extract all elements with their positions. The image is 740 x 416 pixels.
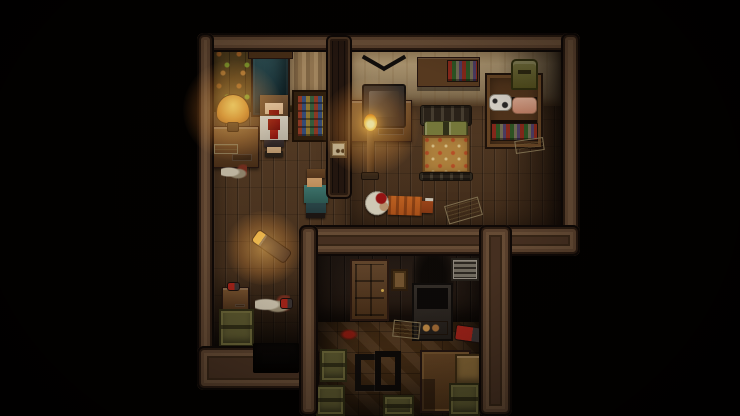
wall-storage-right: [479, 225, 512, 416]
crate-left-top: [320, 349, 347, 382]
bed-foot-rail: [419, 172, 473, 181]
wall-right: [561, 33, 580, 256]
storage-door[interactable]: [350, 259, 389, 321]
wall-left: [197, 33, 214, 390]
bed-blanket: [422, 135, 470, 174]
table-lamp-shade: [216, 94, 250, 124]
divider-wall: [326, 35, 352, 199]
stained-glass-cabinet: [292, 90, 329, 142]
air-vent: [451, 258, 479, 281]
light-switch[interactable]: [330, 141, 347, 158]
small-wall-frame: [391, 269, 408, 291]
bookshelf-bag: [511, 59, 538, 90]
blood-stain: [340, 329, 358, 340]
crate-left-bottom: [316, 385, 345, 416]
red-bottle: [227, 282, 240, 291]
shelf-cow-cloth: [489, 94, 512, 111]
hallway-crate: [219, 309, 254, 347]
dark-passage[interactable]: [253, 343, 299, 373]
storage-floor-papers[interactable]: [392, 320, 421, 340]
fallen-chair: [353, 349, 404, 388]
candle-flame: [364, 114, 377, 131]
hallway-red-item: [280, 298, 293, 309]
wall-storage-left: [299, 225, 318, 416]
crate-right-top: [455, 354, 482, 385]
shelf-pink-cloth: [512, 97, 537, 114]
crate-bottom-middle: [383, 395, 414, 416]
wall-bottom-upper: [299, 225, 580, 256]
crate-right-bottom: [449, 383, 480, 416]
floor-debris-left: [221, 164, 247, 180]
body-victim[interactable]: [362, 187, 434, 223]
table-lamp-base: [227, 122, 239, 132]
wall-top: [197, 33, 580, 52]
candle-stand-pole: [367, 128, 374, 176]
white-bowl: [214, 144, 238, 154]
game-viewport: [0, 0, 740, 416]
wall-shelf-books: [447, 60, 478, 82]
woman-bloody[interactable]: [256, 95, 292, 158]
candle-stand-base: [361, 172, 379, 180]
